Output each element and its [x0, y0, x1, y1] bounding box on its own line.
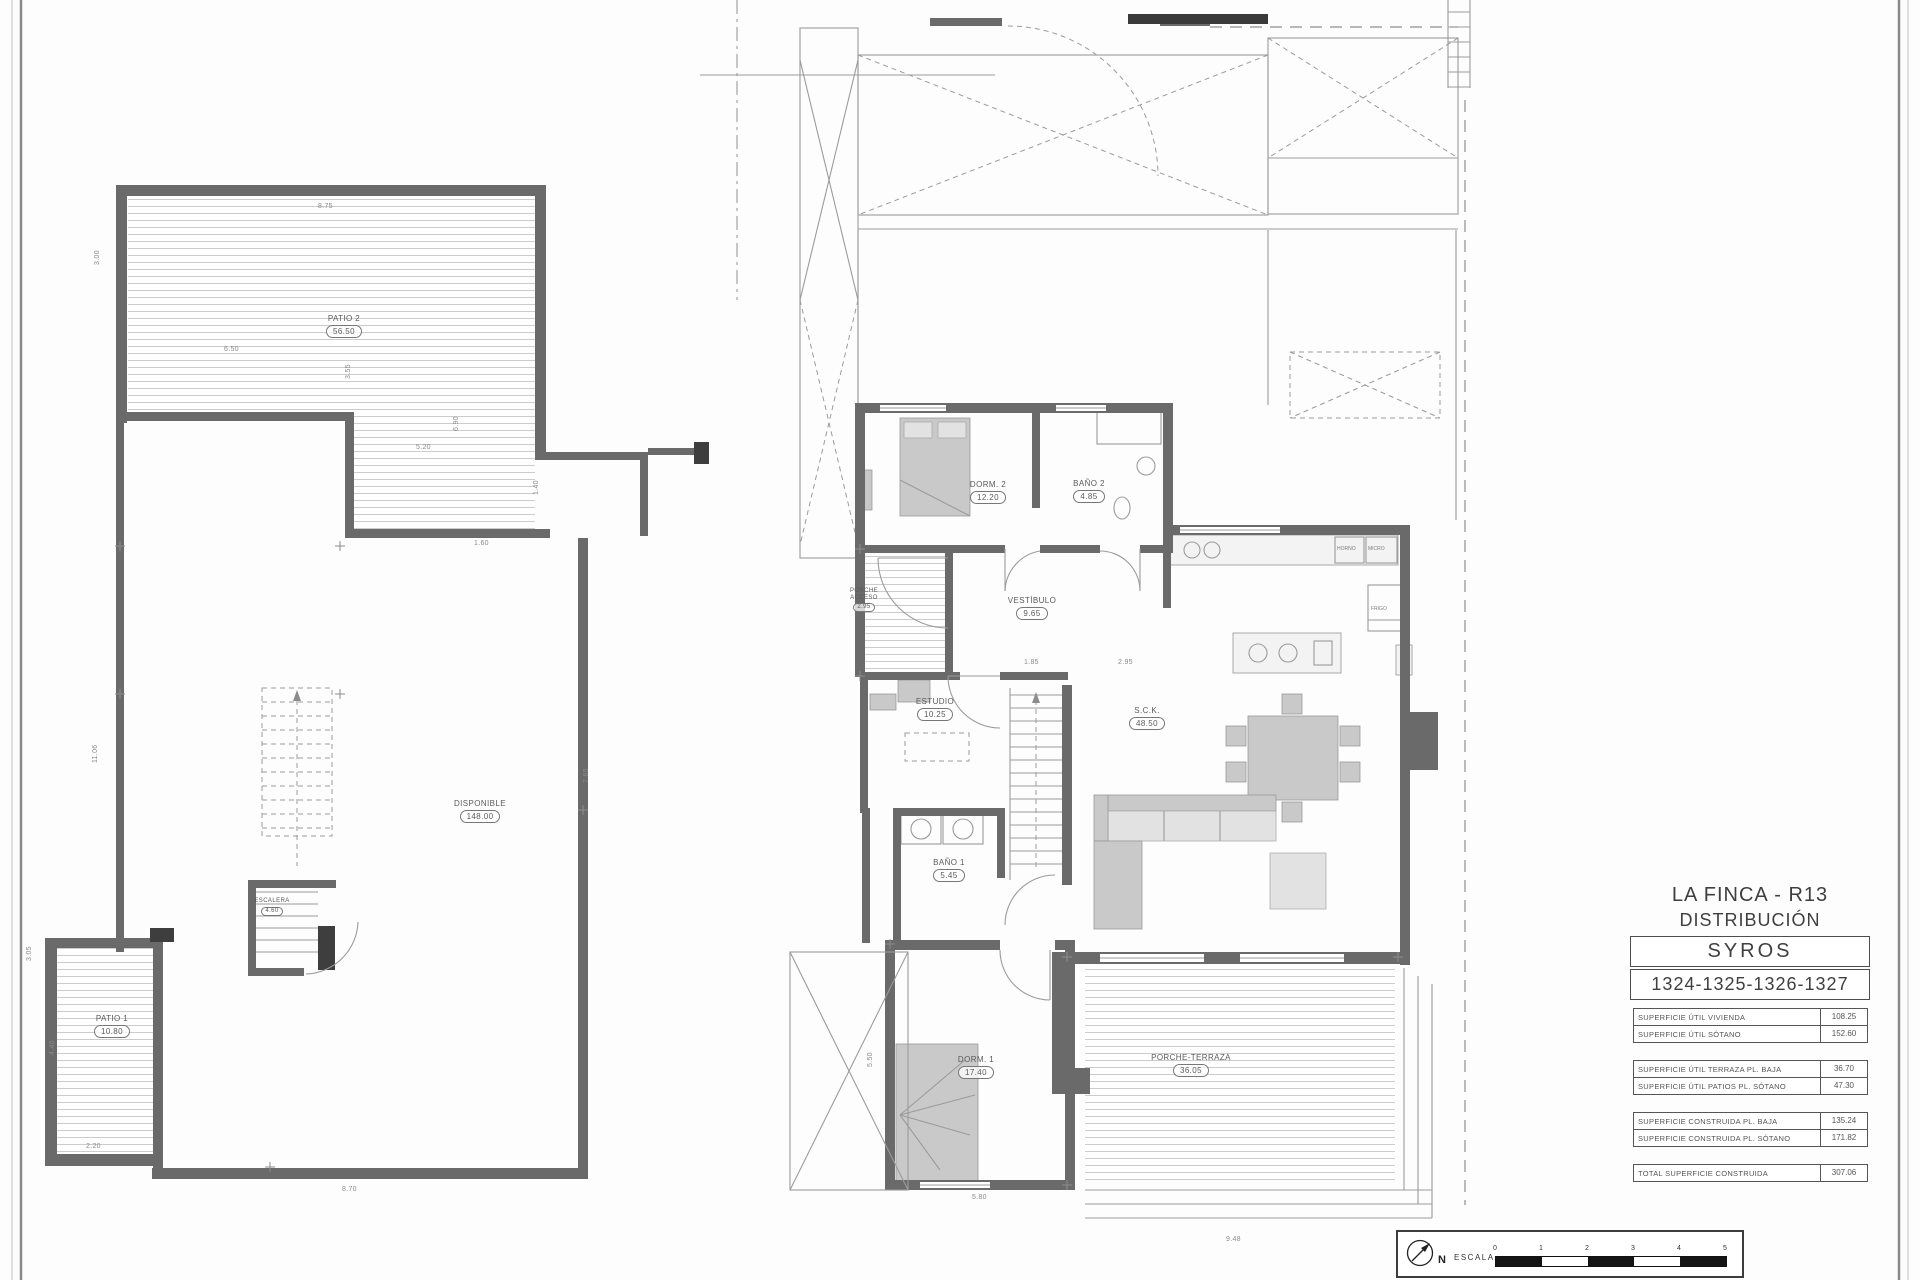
room-area-box: 10.25	[917, 708, 953, 721]
dim-text: 5.80	[972, 1194, 987, 1201]
room-area-box: 2.95	[853, 603, 874, 612]
scale-segment	[1680, 1257, 1726, 1266]
room-area-box: 4.60	[261, 907, 282, 916]
scale-tick: 5	[1723, 1245, 1727, 1252]
table-row: SUPERFICIE ÚTIL VIVIENDA 108.25	[1634, 1009, 1867, 1025]
room-area-box: 36.05	[1173, 1064, 1209, 1077]
dim-text: 8.70	[342, 1186, 357, 1193]
scale-tick: 0	[1493, 1245, 1497, 1252]
room-label-porche-acceso: PORCHE ACCESO 2.95	[842, 588, 886, 612]
dim-text: 1.60	[474, 540, 489, 547]
dim-text: 5.50	[867, 1052, 874, 1067]
room-area-box: 148.00	[460, 810, 501, 823]
scale-bar: N ESCALA 0 1 2 3 4 5	[1396, 1230, 1744, 1278]
north-compass-icon	[1404, 1237, 1438, 1271]
area-table-total: TOTAL SUPERFICIE CONSTRUIDA 307.06	[1633, 1164, 1868, 1182]
scale-label: ESCALA	[1454, 1253, 1495, 1262]
dim-text: 6.90	[453, 416, 460, 431]
dim-text: 8.75	[318, 203, 333, 210]
table-row: SUPERFICIE ÚTIL TERRAZA PL. BAJA 36.70	[1634, 1061, 1867, 1077]
room-label-dorm-1: DORM. 1 17.40	[936, 1055, 1016, 1079]
room-area-box: 5.45	[933, 869, 964, 882]
room-name: PATIO 2	[304, 314, 384, 323]
dim-text: 4.40	[49, 1040, 56, 1055]
room-label-estudio: ESTUDIO 10.25	[895, 697, 975, 721]
scale-tick: 4	[1677, 1245, 1681, 1252]
room-name: BAÑO 1	[914, 858, 984, 867]
scale-tick: 2	[1585, 1245, 1589, 1252]
room-label-escalera: ESCALERA 4.60	[240, 898, 304, 916]
scale-segment	[1542, 1257, 1588, 1266]
project-title: LA FINCA - R13	[1630, 884, 1870, 907]
room-name: DORM. 2	[948, 480, 1028, 489]
room-area-box: 4.85	[1073, 490, 1104, 503]
room-name: VESTÍBULO	[990, 596, 1074, 605]
area-table-exterior: SUPERFICIE ÚTIL TERRAZA PL. BAJA 36.70 S…	[1633, 1060, 1868, 1095]
dim-text: 11.06	[92, 745, 99, 764]
dim-text: 1.85	[1024, 659, 1039, 666]
room-area-box: 56.50	[326, 325, 362, 338]
room-name: ESCALERA	[240, 898, 304, 905]
north-label: N	[1438, 1254, 1446, 1266]
room-area-box: 12.20	[970, 491, 1006, 504]
scale-segment	[1634, 1257, 1680, 1266]
appliance-label-oven: HORNO	[1337, 546, 1356, 552]
room-label-patio-2: PATIO 2 56.50	[304, 314, 384, 338]
table-row: TOTAL SUPERFICIE CONSTRUIDA 307.06	[1634, 1165, 1867, 1181]
title-block: LA FINCA - R13 DISTRIBUCIÓN SYROS 1324-1…	[1630, 884, 1870, 1000]
room-area-box: 10.80	[94, 1025, 130, 1038]
dim-text: 3.05	[26, 946, 33, 961]
scale-bar-segments	[1495, 1256, 1727, 1267]
plan-linework	[0, 0, 1920, 1280]
room-label-bano-1: BAÑO 1 5.45	[914, 858, 984, 882]
dim-text: 3.55	[345, 364, 352, 379]
table-row: SUPERFICIE ÚTIL PATIOS PL. SÓTANO 47.30	[1634, 1077, 1867, 1094]
table-row: SUPERFICIE CONSTRUIDA PL. SÓTANO 171.82	[1634, 1129, 1867, 1146]
ground-floor-linework	[700, 0, 1470, 1218]
scale-segment	[1496, 1257, 1542, 1266]
area-table-construida: SUPERFICIE CONSTRUIDA PL. BAJA 135.24 SU…	[1633, 1112, 1868, 1147]
room-area-box: 17.40	[958, 1066, 994, 1079]
room-label-vestibulo: VESTÍBULO 9.65	[990, 596, 1074, 620]
dim-text: 7.65	[583, 768, 590, 783]
table-row: SUPERFICIE CONSTRUIDA PL. BAJA 135.24	[1634, 1113, 1867, 1129]
room-name: PORCHE ACCESO	[842, 588, 886, 601]
room-name: PORCHE-TERRAZA	[1131, 1053, 1251, 1062]
unit-numbers-box: 1324-1325-1326-1327	[1630, 969, 1870, 1000]
dim-text: 5.20	[416, 444, 431, 451]
room-name: DISPONIBLE	[440, 799, 520, 808]
scale-tick: 3	[1631, 1245, 1635, 1252]
room-label-disponible: DISPONIBLE 148.00	[440, 799, 520, 823]
room-label-dorm-2: DORM. 2 12.20	[948, 480, 1028, 504]
dim-text: 1.40	[533, 480, 540, 495]
room-name: ESTUDIO	[895, 697, 975, 706]
room-area-box: 9.65	[1016, 607, 1047, 620]
dim-text: 9.48	[1226, 1236, 1241, 1243]
room-name: BAÑO 2	[1054, 479, 1124, 488]
room-label-patio-1: PATIO 1 10.80	[72, 1014, 152, 1038]
room-name: PATIO 1	[72, 1014, 152, 1023]
room-area-box: 48.50	[1129, 717, 1165, 730]
room-name: S.C.K.	[1107, 706, 1187, 715]
scale-segment	[1588, 1257, 1634, 1266]
dim-text: 2.20	[86, 1143, 101, 1150]
model-name-box: SYROS	[1630, 936, 1870, 967]
area-tables: SUPERFICIE ÚTIL VIVIENDA 108.25 SUPERFIC…	[1633, 1008, 1868, 1199]
dim-text: 2.95	[1118, 659, 1133, 666]
table-row: SUPERFICIE ÚTIL SÓTANO 152.60	[1634, 1025, 1867, 1042]
dim-text: 3.00	[94, 250, 101, 265]
dim-text: 6.50	[224, 346, 239, 353]
area-table-util: SUPERFICIE ÚTIL VIVIENDA 108.25 SUPERFIC…	[1633, 1008, 1868, 1043]
room-name: DORM. 1	[936, 1055, 1016, 1064]
drawing-sheet: PATIO 2 56.50 DISPONIBLE 148.00 ESCALERA…	[0, 0, 1920, 1280]
room-label-bano-2: BAÑO 2 4.85	[1054, 479, 1124, 503]
room-label-porche-terraza: PORCHE-TERRAZA 36.05	[1131, 1053, 1251, 1077]
scale-tick: 1	[1539, 1245, 1543, 1252]
sheet-name: DISTRIBUCIÓN	[1630, 910, 1870, 931]
appliance-label-fridge: FRIGO	[1371, 606, 1387, 612]
room-label-sck: S.C.K. 48.50	[1107, 706, 1187, 730]
appliance-label-micro: MICRO	[1368, 546, 1385, 552]
